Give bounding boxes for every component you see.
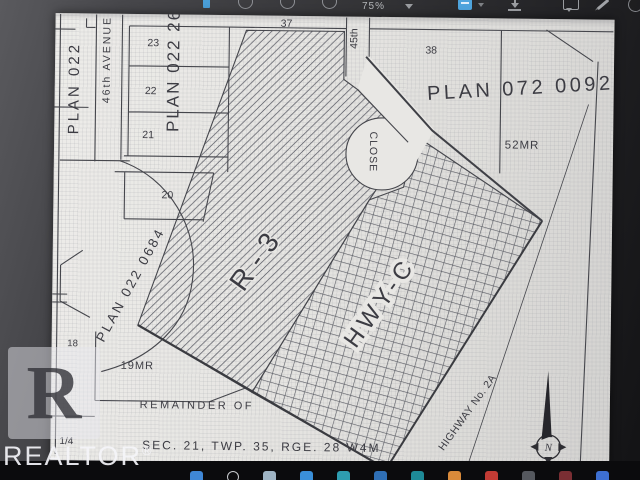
compass-needle bbox=[541, 371, 552, 440]
mr-19-label: 19MR bbox=[121, 360, 154, 372]
app-orange-icon[interactable] bbox=[448, 471, 461, 480]
start-icon[interactable] bbox=[190, 471, 203, 480]
screen: 75% bbox=[0, 0, 640, 480]
lot-38-label: 38 bbox=[425, 44, 437, 56]
plan-072-0092-label: PLAN 072 0092 bbox=[426, 72, 614, 105]
lot-37-label: 37 bbox=[281, 18, 293, 30]
zoom-in-icon[interactable] bbox=[280, 0, 295, 9]
avenue-46th-label: 46th AVENUE bbox=[101, 16, 114, 103]
zoom-level[interactable]: 75% bbox=[362, 1, 385, 12]
tool-circle-icon[interactable] bbox=[628, 0, 640, 12]
app-gray-icon[interactable] bbox=[522, 471, 535, 480]
remainder-line2-label: SEC. 21, TWP. 35, RGE. 28 W4M bbox=[142, 438, 380, 455]
app-maroon-icon[interactable] bbox=[559, 471, 572, 480]
highway-2a-label: HIGHWAY No. 2A bbox=[436, 372, 499, 453]
outlook-icon[interactable] bbox=[374, 471, 387, 480]
quarter-fragment-label: 1/4 bbox=[59, 436, 73, 447]
app-blue-icon[interactable] bbox=[596, 471, 609, 480]
edge-browser-icon[interactable] bbox=[300, 471, 313, 480]
pen-icon[interactable] bbox=[597, 0, 610, 10]
remainder-line1-label: REMAINDER OF bbox=[140, 399, 254, 412]
app-red-icon[interactable] bbox=[485, 471, 498, 480]
mr-52-label: 52MR bbox=[505, 139, 540, 151]
plan-022-26-label: PLAN 022 26 bbox=[163, 13, 184, 132]
download-icon[interactable] bbox=[508, 0, 521, 10]
file-explorer-icon[interactable] bbox=[263, 471, 276, 480]
lot-20-label: 20 bbox=[162, 189, 174, 201]
lot-21-label: 21 bbox=[142, 129, 154, 141]
page-view-icon[interactable] bbox=[322, 0, 337, 9]
export-file-icon[interactable] bbox=[458, 0, 472, 10]
lot-22-label: 22 bbox=[145, 85, 157, 97]
close-label: CLOSE bbox=[367, 131, 379, 172]
search-icon[interactable] bbox=[227, 471, 239, 480]
plat-map: N PLAN 022 46th AVENUE PLAN 022 26 23 22… bbox=[50, 13, 614, 467]
lot-23-label: 23 bbox=[147, 37, 159, 49]
plan-022-label: PLAN 022 bbox=[65, 42, 83, 135]
north-label: N bbox=[544, 442, 553, 454]
taskbar bbox=[0, 461, 640, 480]
north-compass: N bbox=[530, 371, 567, 465]
marker-icon[interactable] bbox=[203, 0, 210, 8]
comment-icon[interactable] bbox=[563, 0, 579, 10]
zoom-out-icon[interactable] bbox=[238, 0, 253, 9]
lot-18-label: 18 bbox=[67, 338, 78, 349]
caret-down-icon[interactable] bbox=[405, 4, 413, 9]
document-page[interactable]: N PLAN 022 46th AVENUE PLAN 022 26 23 22… bbox=[50, 13, 614, 467]
app-teal-icon[interactable] bbox=[411, 471, 424, 480]
teams-icon[interactable] bbox=[337, 471, 350, 480]
street-45th-label: 45th bbox=[348, 28, 360, 49]
export-caret-icon[interactable] bbox=[478, 3, 484, 7]
